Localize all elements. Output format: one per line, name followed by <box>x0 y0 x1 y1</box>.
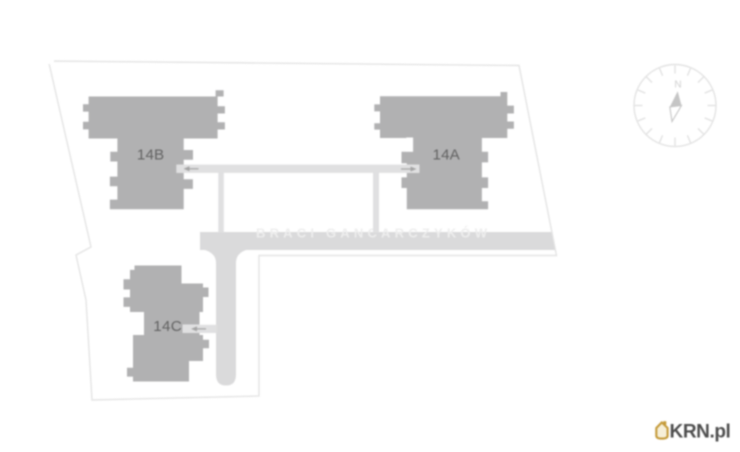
svg-text:14B: 14B <box>137 147 164 164</box>
svg-text:N: N <box>674 80 681 91</box>
svg-text:KRN.pl: KRN.pl <box>670 422 731 443</box>
svg-text:14A: 14A <box>433 147 461 164</box>
svg-text:14C: 14C <box>153 318 182 335</box>
